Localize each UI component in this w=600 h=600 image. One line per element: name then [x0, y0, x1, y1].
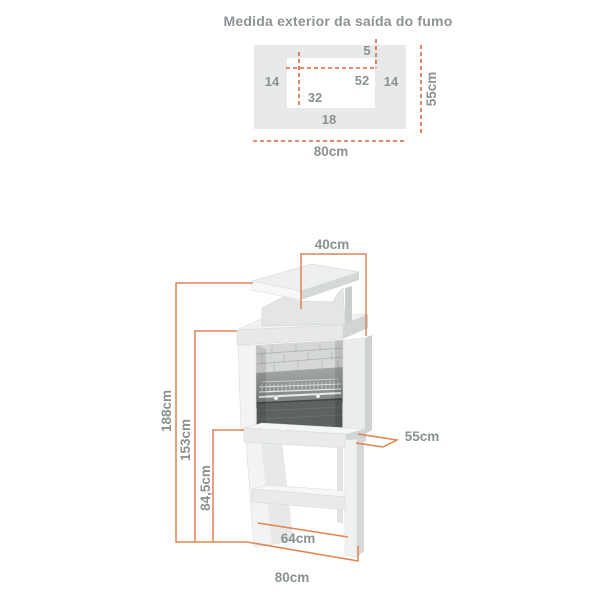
- dim-label-overall-depth: 55cm: [424, 72, 439, 107]
- dim-label-opening-width: 52: [355, 73, 369, 88]
- dim-label-opening-offset: 32: [308, 90, 322, 105]
- dim-label-ledge-bottom: 18: [322, 112, 336, 127]
- right-pillar-side: [365, 335, 372, 434]
- diagram-svg: 5 14 52 14 32 18 55cm 80cm: [0, 0, 600, 600]
- dim-label-hood-height: 153cm: [178, 419, 193, 461]
- right-pillar: [343, 338, 365, 434]
- dim-label-wall-right: 14: [384, 74, 399, 89]
- smoke-outlet-top-view: 5 14 52 14 32 18 55cm 80cm: [253, 39, 439, 159]
- dim-label-shelf-width: 64cm: [281, 531, 316, 546]
- dim-label-depth: 55cm: [405, 429, 440, 444]
- barbecue-illustration: [237, 264, 372, 557]
- grill-knob-right: [316, 394, 320, 398]
- right-leg: [345, 439, 357, 557]
- dim-label-worktop-height: 84,5cm: [198, 465, 213, 511]
- right-leg-side: [357, 437, 364, 557]
- chimney-neck-side: [345, 286, 352, 324]
- dim-label-overall-width: 80cm: [314, 144, 349, 159]
- dim-line-84-5cm: [213, 430, 244, 542]
- dim-label-wall-left: 14: [265, 74, 280, 89]
- left-pillar: [238, 345, 256, 431]
- lower-back-edge: [337, 447, 343, 524]
- dim-label-base-width: 80cm: [275, 570, 310, 585]
- grill-knob-left: [274, 396, 278, 400]
- firebox-left-shade: [256, 345, 266, 430]
- dim-label-chimney-width: 40cm: [315, 237, 350, 252]
- dim-label-gap-top: 5: [363, 43, 370, 58]
- diagram-canvas: Medida exterior da saída do fumo 5 14 52…: [0, 0, 600, 600]
- dim-label-total-height: 188cm: [159, 390, 174, 432]
- firebox-right-shade: [335, 340, 343, 431]
